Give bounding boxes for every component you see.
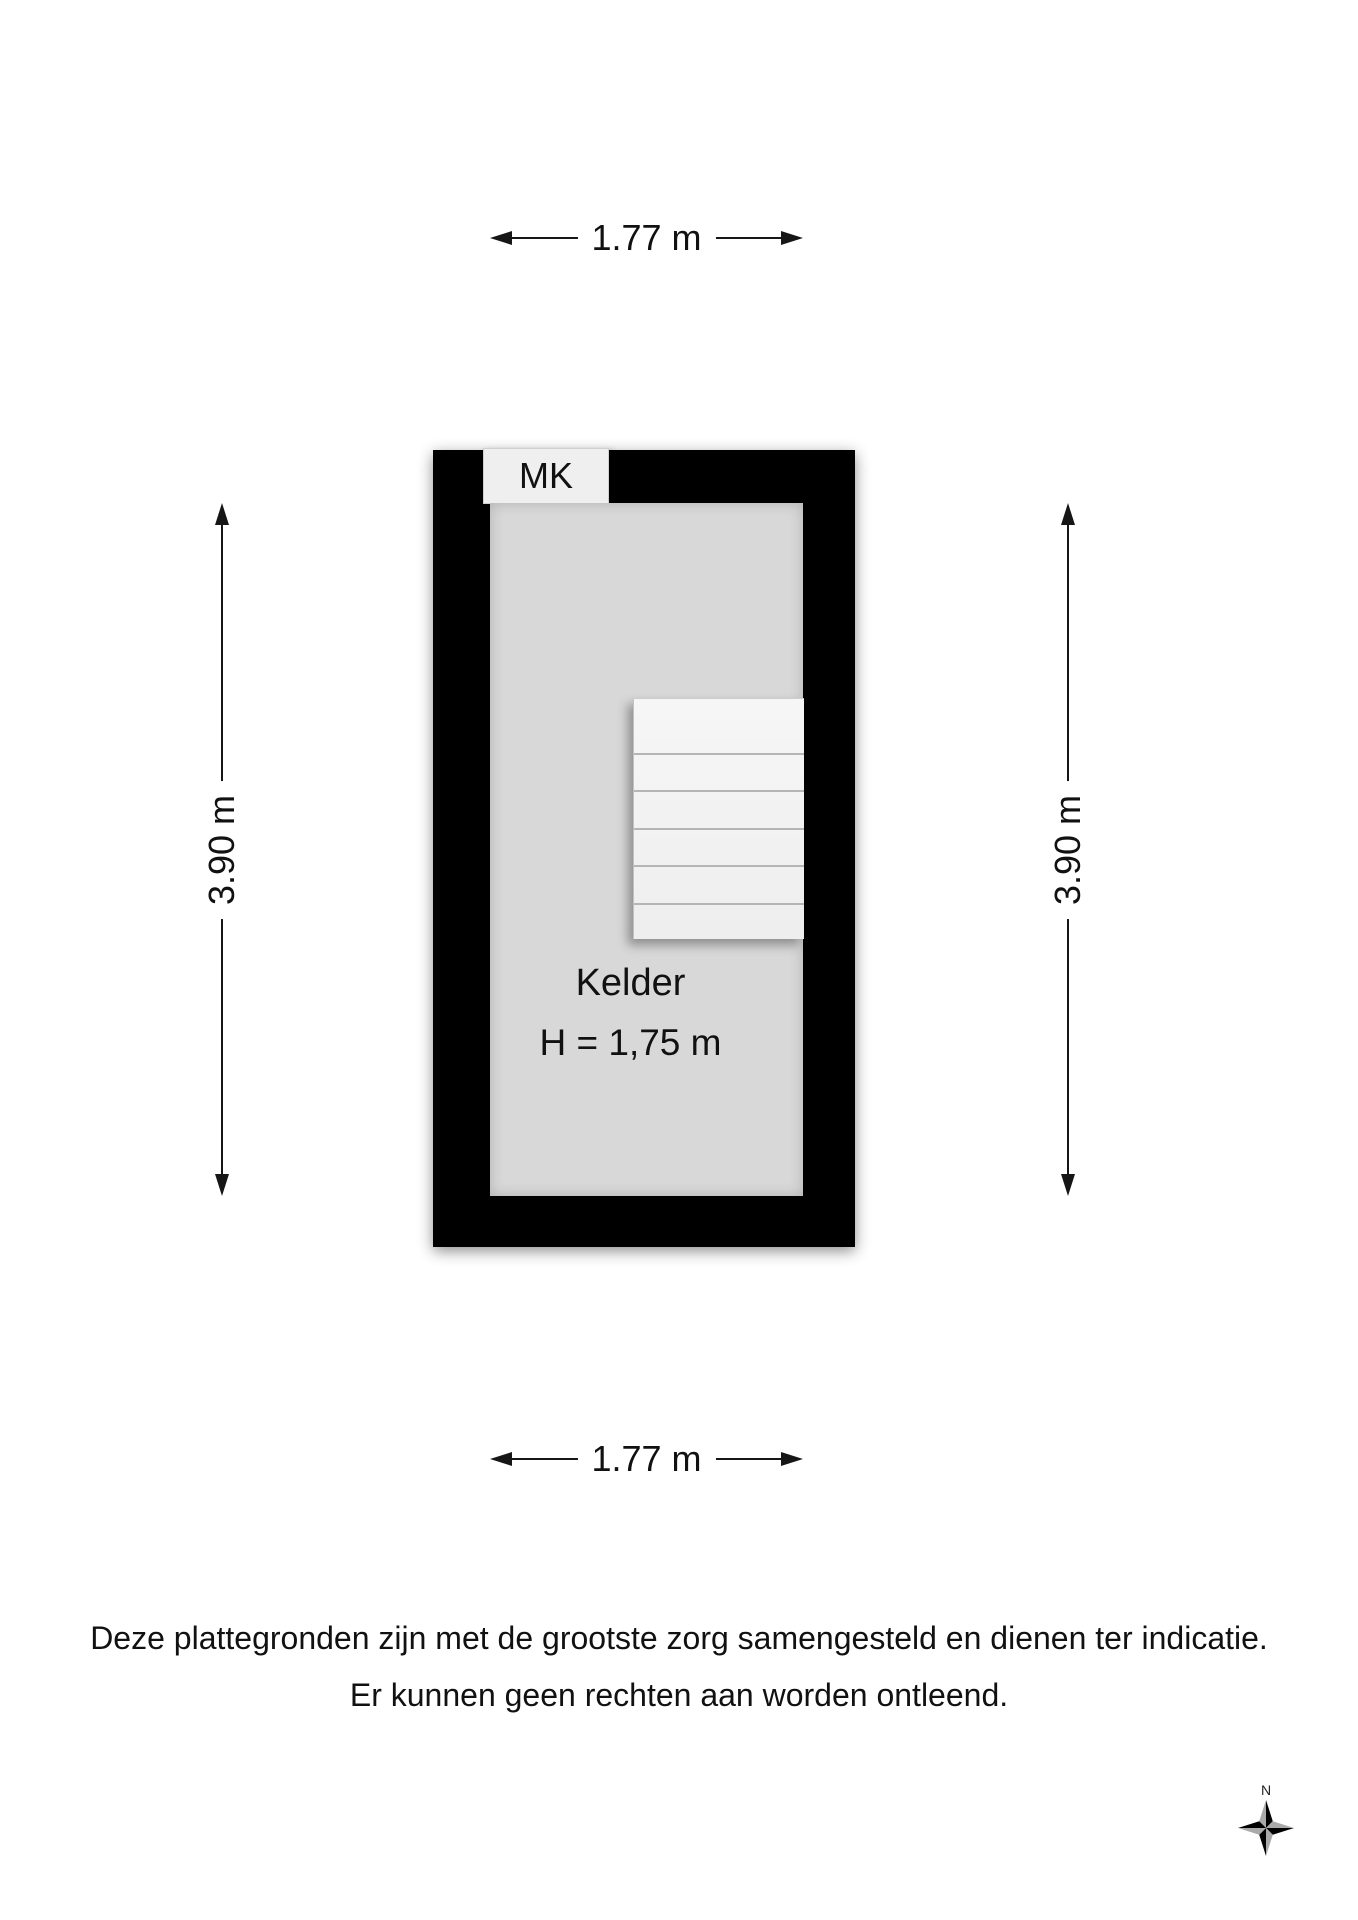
floorplan-page: 1.77 m 3.90 m 3.90 m 1.77 m MK <box>0 0 1358 1920</box>
arrowhead-left-icon <box>490 231 512 245</box>
stair-tread-line <box>634 865 804 867</box>
arrowhead-down-icon <box>1061 1174 1075 1196</box>
arrowhead-right-icon <box>781 231 803 245</box>
disclaimer-line-2: Er kunnen geen rechten aan worden ontlee… <box>0 1667 1358 1724</box>
dimension-height-right: 3.90 m <box>1056 503 1080 1196</box>
stair-tread-line <box>634 828 804 830</box>
arrowhead-down-icon <box>215 1174 229 1196</box>
arrowhead-up-icon <box>1061 503 1075 525</box>
basement-floor: Kelder H = 1,75 m <box>490 503 803 1196</box>
stair-tread-line <box>634 753 804 755</box>
disclaimer-text: Deze plattegronden zijn met de grootste … <box>0 1610 1358 1724</box>
arrowhead-right-icon <box>781 1452 803 1466</box>
dimension-height-left: 3.90 m <box>210 503 234 1196</box>
stair-tread-line <box>634 903 804 905</box>
compass-north-label: N <box>1230 1781 1302 1799</box>
disclaimer-line-1: Deze plattegronden zijn met de grootste … <box>0 1610 1358 1667</box>
dimension-height-right-label: 3.90 m <box>1046 780 1090 918</box>
dimension-height-left-label: 3.90 m <box>200 780 244 918</box>
room-text-block: Kelder H = 1,75 m <box>474 961 787 1065</box>
room-ceiling-height-label: H = 1,75 m <box>474 1021 787 1065</box>
staircase <box>633 698 804 939</box>
basement-walls: MK Kelder H = 1,75 m <box>433 450 855 1247</box>
meter-cupboard: MK <box>483 448 609 504</box>
arrowhead-left-icon <box>490 1452 512 1466</box>
dimension-width-bottom: 1.77 m <box>490 1447 803 1471</box>
stair-tread-line <box>634 790 804 792</box>
dimension-width-bottom-label: 1.77 m <box>577 1437 715 1481</box>
room-name-label: Kelder <box>474 961 787 1005</box>
compass-star-icon <box>1237 1799 1295 1857</box>
dimension-width-top-label: 1.77 m <box>577 216 715 260</box>
arrowhead-up-icon <box>215 503 229 525</box>
dimension-width-top: 1.77 m <box>490 226 803 250</box>
compass-rose: N <box>1230 1781 1302 1857</box>
